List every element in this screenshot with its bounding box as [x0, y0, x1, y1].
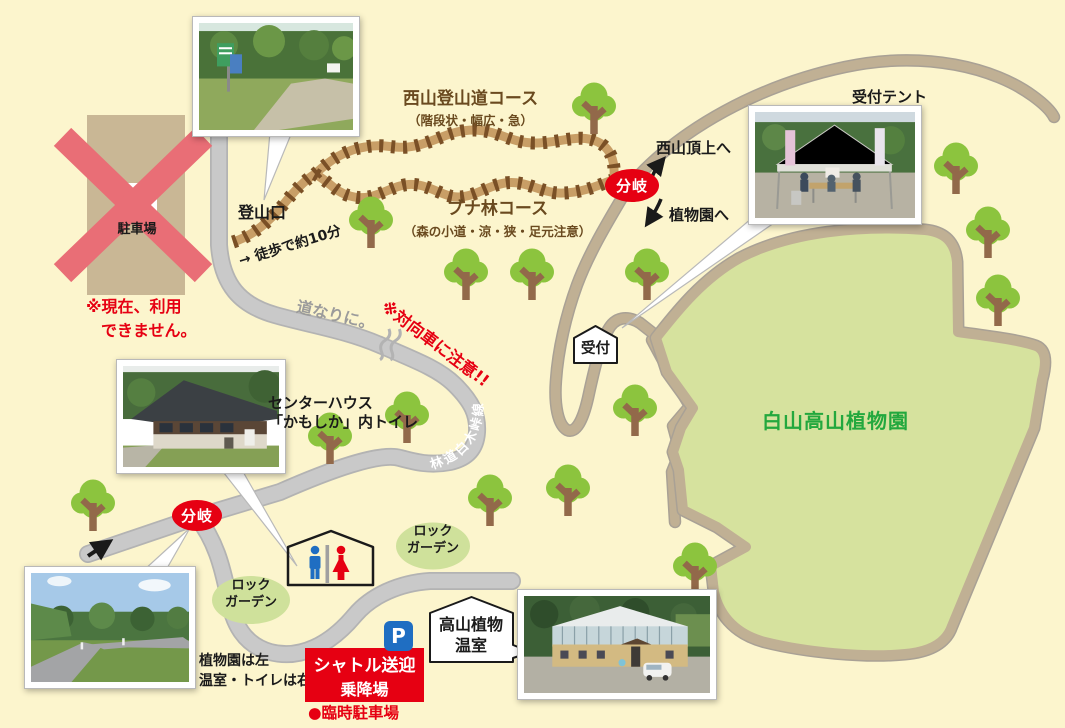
rock-garden-line1: ロック [396, 524, 470, 541]
nishiyama-course-title: 西山登山道コース [393, 89, 548, 110]
tree-icon [546, 465, 590, 517]
rock-garden-label: ロック ガーデン [396, 524, 470, 558]
toilet-divider [326, 545, 330, 583]
greenhouse-photo [517, 589, 717, 700]
tree-icon [613, 385, 657, 437]
center-house-photo [116, 359, 286, 474]
temp-parking-label: ●臨時駐車場 [308, 704, 399, 723]
shuttle-line2: 乗降場 [340, 676, 388, 700]
access-map: P 林道白木峠線 [0, 0, 1065, 728]
to-summit-label: 西山頂上へ [656, 139, 731, 158]
garden-name-label: 白山高山植物園 [762, 409, 909, 434]
toilet-sign [288, 531, 373, 585]
forest-road-name: 林道白木峠線 [428, 401, 487, 473]
parking-name-label: 駐車場 [107, 222, 167, 238]
buna-course-subtitle: （森の小道・涼・狭・足元注意） [395, 224, 600, 240]
center-house-line1: センターハウス [268, 394, 418, 413]
road-fork-photo [24, 566, 196, 689]
greenhouse-line1: 高山植物 [428, 615, 514, 636]
to-garden-label: 植物園へ [669, 206, 729, 225]
shuttle-stop-sign: シャトル送迎 乗降場 [305, 648, 424, 702]
tree-icon [468, 475, 512, 527]
shuttle-parking-p-icon: P [384, 621, 413, 651]
reception-tent-label: 受付テント [852, 88, 927, 107]
rock-garden-line2: ガーデン [212, 595, 290, 612]
rock-garden-line2: ガーデン [396, 541, 470, 558]
parking-closed-notice-2: できません。 [101, 321, 197, 341]
tree-icon [966, 207, 1010, 259]
tree-icon [934, 143, 978, 195]
tree-icon [572, 83, 616, 135]
greenhouse-line2: 温室 [428, 636, 514, 657]
tree-icon [349, 197, 393, 249]
reception-booth-label: 受付 [574, 340, 617, 358]
directions-line2: 温室・トイレは右 [199, 671, 311, 691]
tree-icon [510, 249, 554, 301]
tree-icon [625, 249, 669, 301]
directions-line1: 植物園は左 [199, 651, 311, 671]
tree-icon [444, 249, 488, 301]
reception-tent-photo [748, 105, 922, 225]
junction-badge-bottom: 分岐 [172, 500, 222, 531]
rock-garden-label: ロック ガーデン [212, 578, 290, 612]
trailhead-label: 登山口 [238, 203, 286, 223]
tree-icon [71, 480, 115, 532]
toilet-house-shape [288, 531, 373, 585]
tree-icon [976, 275, 1020, 327]
center-house-line2: 「かもしか」内トイレ [268, 413, 418, 432]
greenhouse-label: 高山植物 温室 [428, 615, 514, 657]
nishiyama-course-subtitle: （階段状・幅広・急） [393, 113, 548, 129]
male-icon [310, 546, 321, 579]
female-icon [333, 546, 350, 580]
to-garden-arrow-icon [649, 199, 661, 221]
junction-badge-top: 分岐 [605, 169, 659, 202]
buna-course-title: ブナ林コース [420, 199, 575, 220]
trailhead-photo [192, 16, 360, 137]
shuttle-line1: シャトル送迎 [314, 651, 416, 676]
parking-closed-notice-1: ※現在、利用 [86, 297, 182, 317]
directions-label: 植物園は左 温室・トイレは右 [199, 651, 311, 692]
rock-garden-line1: ロック [212, 578, 290, 595]
center-house-label: センターハウス 「かもしか」内トイレ [268, 394, 418, 432]
